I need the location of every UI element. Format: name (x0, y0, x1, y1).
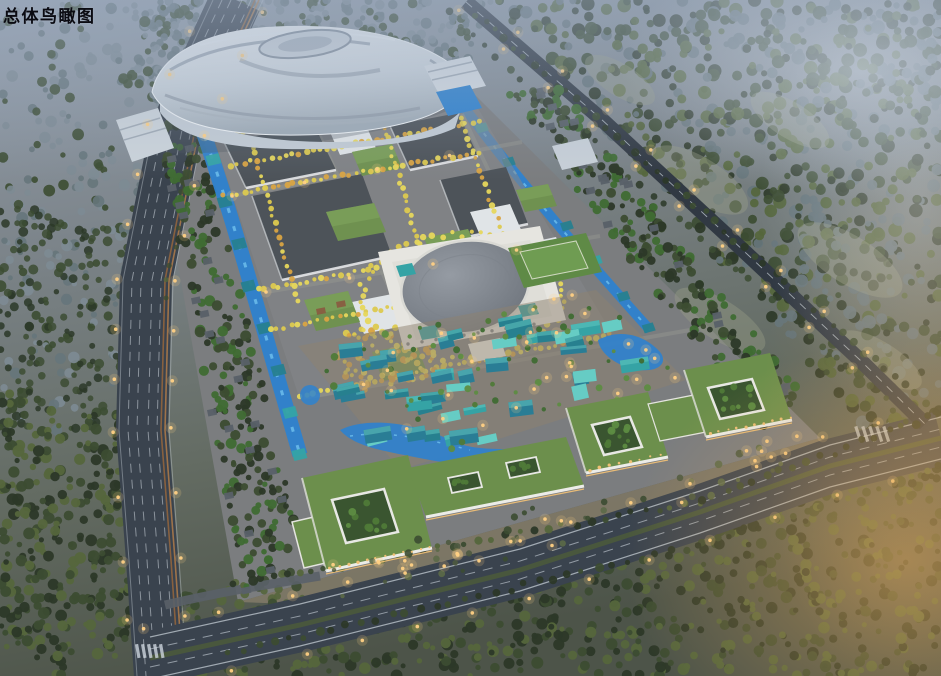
rendering-canvas (0, 0, 941, 676)
aerial-rendering: 总体鸟瞰图 (0, 0, 941, 676)
image-caption: 总体鸟瞰图 (3, 2, 96, 27)
